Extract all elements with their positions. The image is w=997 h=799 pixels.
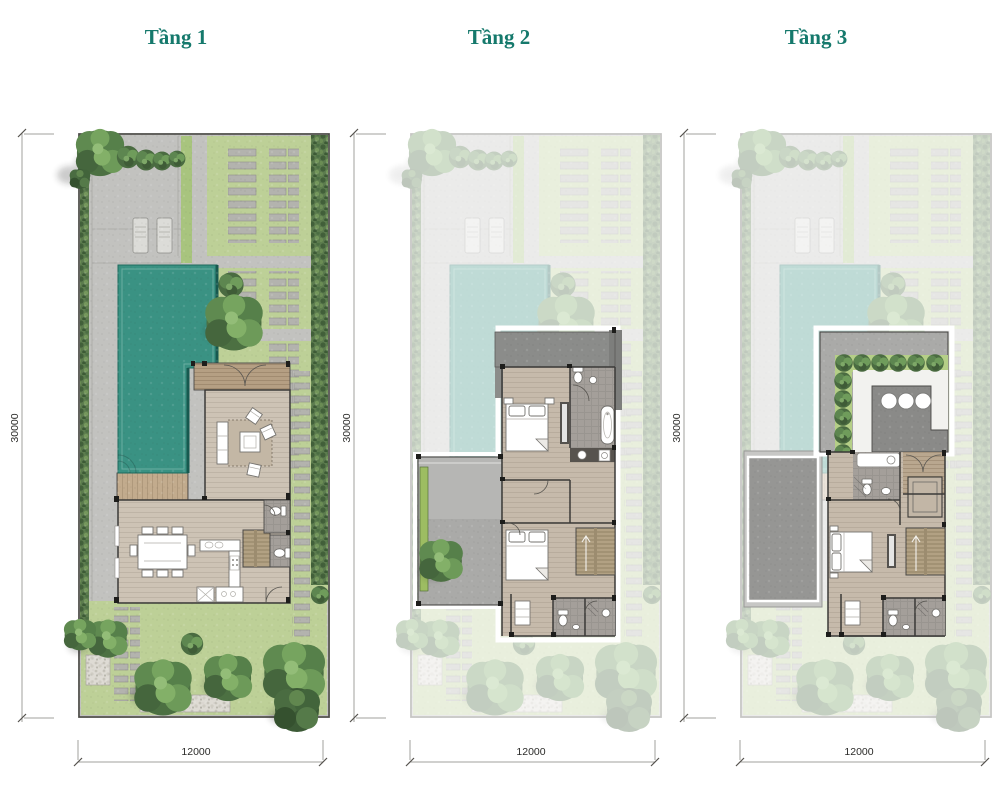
floor-plans-page: Tầng 1 Tầng 2 Tầng 3 30000 30000 30000 1…	[0, 0, 997, 799]
floor-1-title: Tầng 1	[106, 25, 246, 50]
floor-1-height-dimension: 30000	[9, 393, 23, 463]
floor-plan-2	[350, 129, 662, 766]
floor-3-height-dimension: 30000	[671, 393, 685, 463]
floor-plans-drawing	[0, 0, 997, 799]
floor-2-title: Tầng 2	[429, 25, 569, 50]
sofa	[217, 422, 228, 464]
bar-stool	[881, 393, 897, 409]
bar-stool	[915, 393, 931, 409]
floor-3-title: Tầng 3	[746, 25, 886, 50]
floor-2-height-dimension: 30000	[341, 393, 355, 463]
floor-plan-1	[18, 129, 330, 766]
coffee-table	[240, 432, 260, 452]
washer	[599, 450, 610, 461]
floor-plan-3	[680, 129, 992, 766]
dining-table	[138, 535, 187, 569]
floor-1-width-dimension: 12000	[136, 746, 256, 758]
bar-stool	[898, 393, 914, 409]
floor-3-width-dimension: 12000	[799, 746, 919, 758]
floor-2-width-dimension: 12000	[471, 746, 591, 758]
sink	[578, 451, 586, 459]
kitchen-counter	[200, 540, 240, 551]
vanity	[857, 453, 900, 467]
